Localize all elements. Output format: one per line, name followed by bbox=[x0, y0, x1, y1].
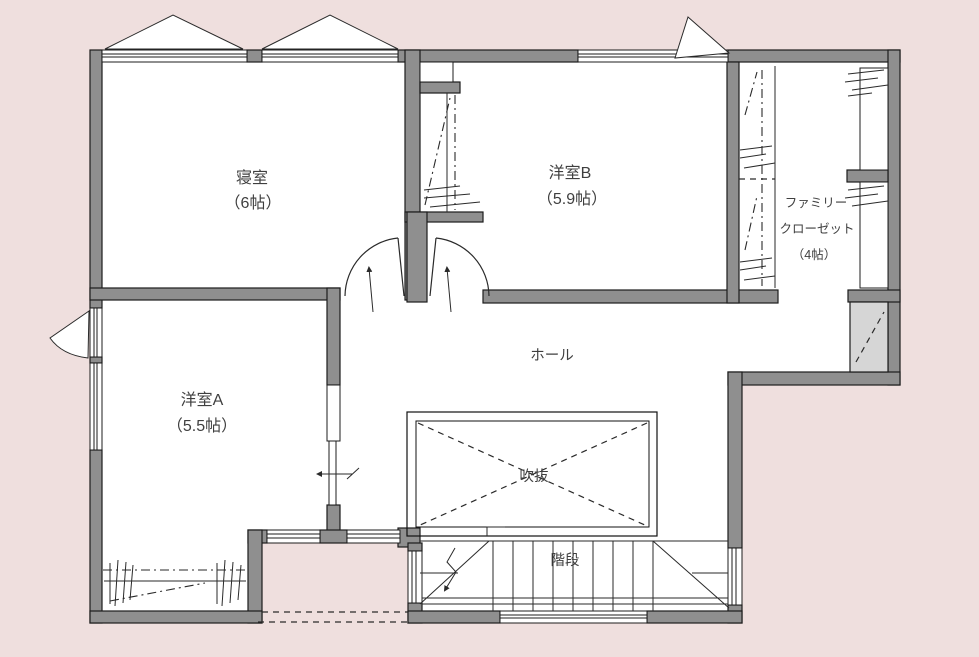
label-family-closet-size: （4帖） bbox=[792, 247, 836, 262]
label-atrium: 吹抜 bbox=[520, 468, 549, 485]
wall-roomA-east-upper bbox=[327, 288, 340, 385]
label-roomB-name: 洋室B bbox=[549, 164, 592, 182]
wall-right-stub bbox=[847, 170, 888, 182]
label-stairs: 階段 bbox=[551, 552, 580, 569]
window-bedroom-top-2 bbox=[262, 50, 398, 62]
wall-roomA-east-lower bbox=[327, 505, 340, 532]
wall-fc-south bbox=[728, 372, 900, 385]
wall-left-upper bbox=[90, 50, 102, 308]
label-roomB-size: （5.9帖） bbox=[537, 190, 607, 208]
shaded-storage-box bbox=[850, 302, 888, 372]
label-hall: ホール bbox=[530, 348, 574, 364]
wall-left-lower bbox=[90, 450, 102, 623]
casement-icon-left bbox=[50, 311, 89, 358]
niche-box bbox=[420, 62, 453, 82]
window-notch-1 bbox=[267, 530, 320, 543]
wall-top-pier bbox=[247, 50, 262, 62]
casement-icon-top-2 bbox=[262, 15, 398, 49]
wall-left-pier bbox=[90, 357, 102, 363]
floor-plan-drawing: 寝室 （6帖） 洋室B （5.9帖） 洋室A （5.5帖） ホール 吹抜 階段 … bbox=[0, 0, 979, 657]
wall-graybox-top bbox=[848, 290, 900, 302]
wall-notch-west bbox=[248, 530, 262, 623]
wall-stairs-south-left bbox=[408, 611, 500, 623]
casement-icon-top-3 bbox=[675, 17, 729, 58]
window-roomA-left bbox=[90, 363, 102, 450]
window-roomA-casement bbox=[90, 308, 102, 357]
wall-notch-pier2 bbox=[320, 530, 347, 543]
label-family-closet-2: クローゼット bbox=[779, 222, 854, 236]
wall-top-right bbox=[728, 50, 900, 62]
window-stairs-bottom bbox=[500, 611, 647, 623]
window-bedroom-top-1 bbox=[102, 50, 247, 62]
window-notch-2 bbox=[347, 530, 400, 543]
wall-stairs-south-right bbox=[647, 611, 742, 623]
building-footprint bbox=[90, 50, 900, 623]
wall-roomB-east bbox=[727, 62, 739, 303]
label-bedroom-name: 寝室 bbox=[236, 168, 268, 187]
window-stairs-left bbox=[408, 551, 422, 603]
wall-hall-east-upper bbox=[728, 372, 742, 548]
window-fc-right-2 bbox=[860, 182, 888, 288]
wall-bedroom-south bbox=[90, 288, 340, 300]
label-roomA-size: （5.5帖） bbox=[167, 417, 237, 435]
label-family-closet-1: ファミリー bbox=[785, 196, 848, 210]
window-hall-right bbox=[728, 548, 742, 605]
window-fc-right-1 bbox=[860, 68, 888, 170]
roof-outline-dashes bbox=[258, 612, 408, 622]
wall-door-stub bbox=[407, 212, 427, 302]
wall-stairs-west-upper bbox=[408, 543, 422, 551]
wall-right bbox=[888, 50, 900, 385]
wall-top-middle bbox=[398, 50, 578, 62]
label-bedroom-size: （6帖） bbox=[225, 194, 282, 212]
wall-bottom-left bbox=[90, 611, 262, 623]
wall-niche-band bbox=[420, 82, 460, 93]
label-roomA-name: 洋室A bbox=[181, 391, 224, 409]
floor-plan-canvas: 寝室 （6帖） 洋室B （5.9帖） 洋室A （5.5帖） ホール 吹抜 階段 … bbox=[0, 0, 979, 657]
casement-icon-top-1 bbox=[105, 15, 243, 49]
